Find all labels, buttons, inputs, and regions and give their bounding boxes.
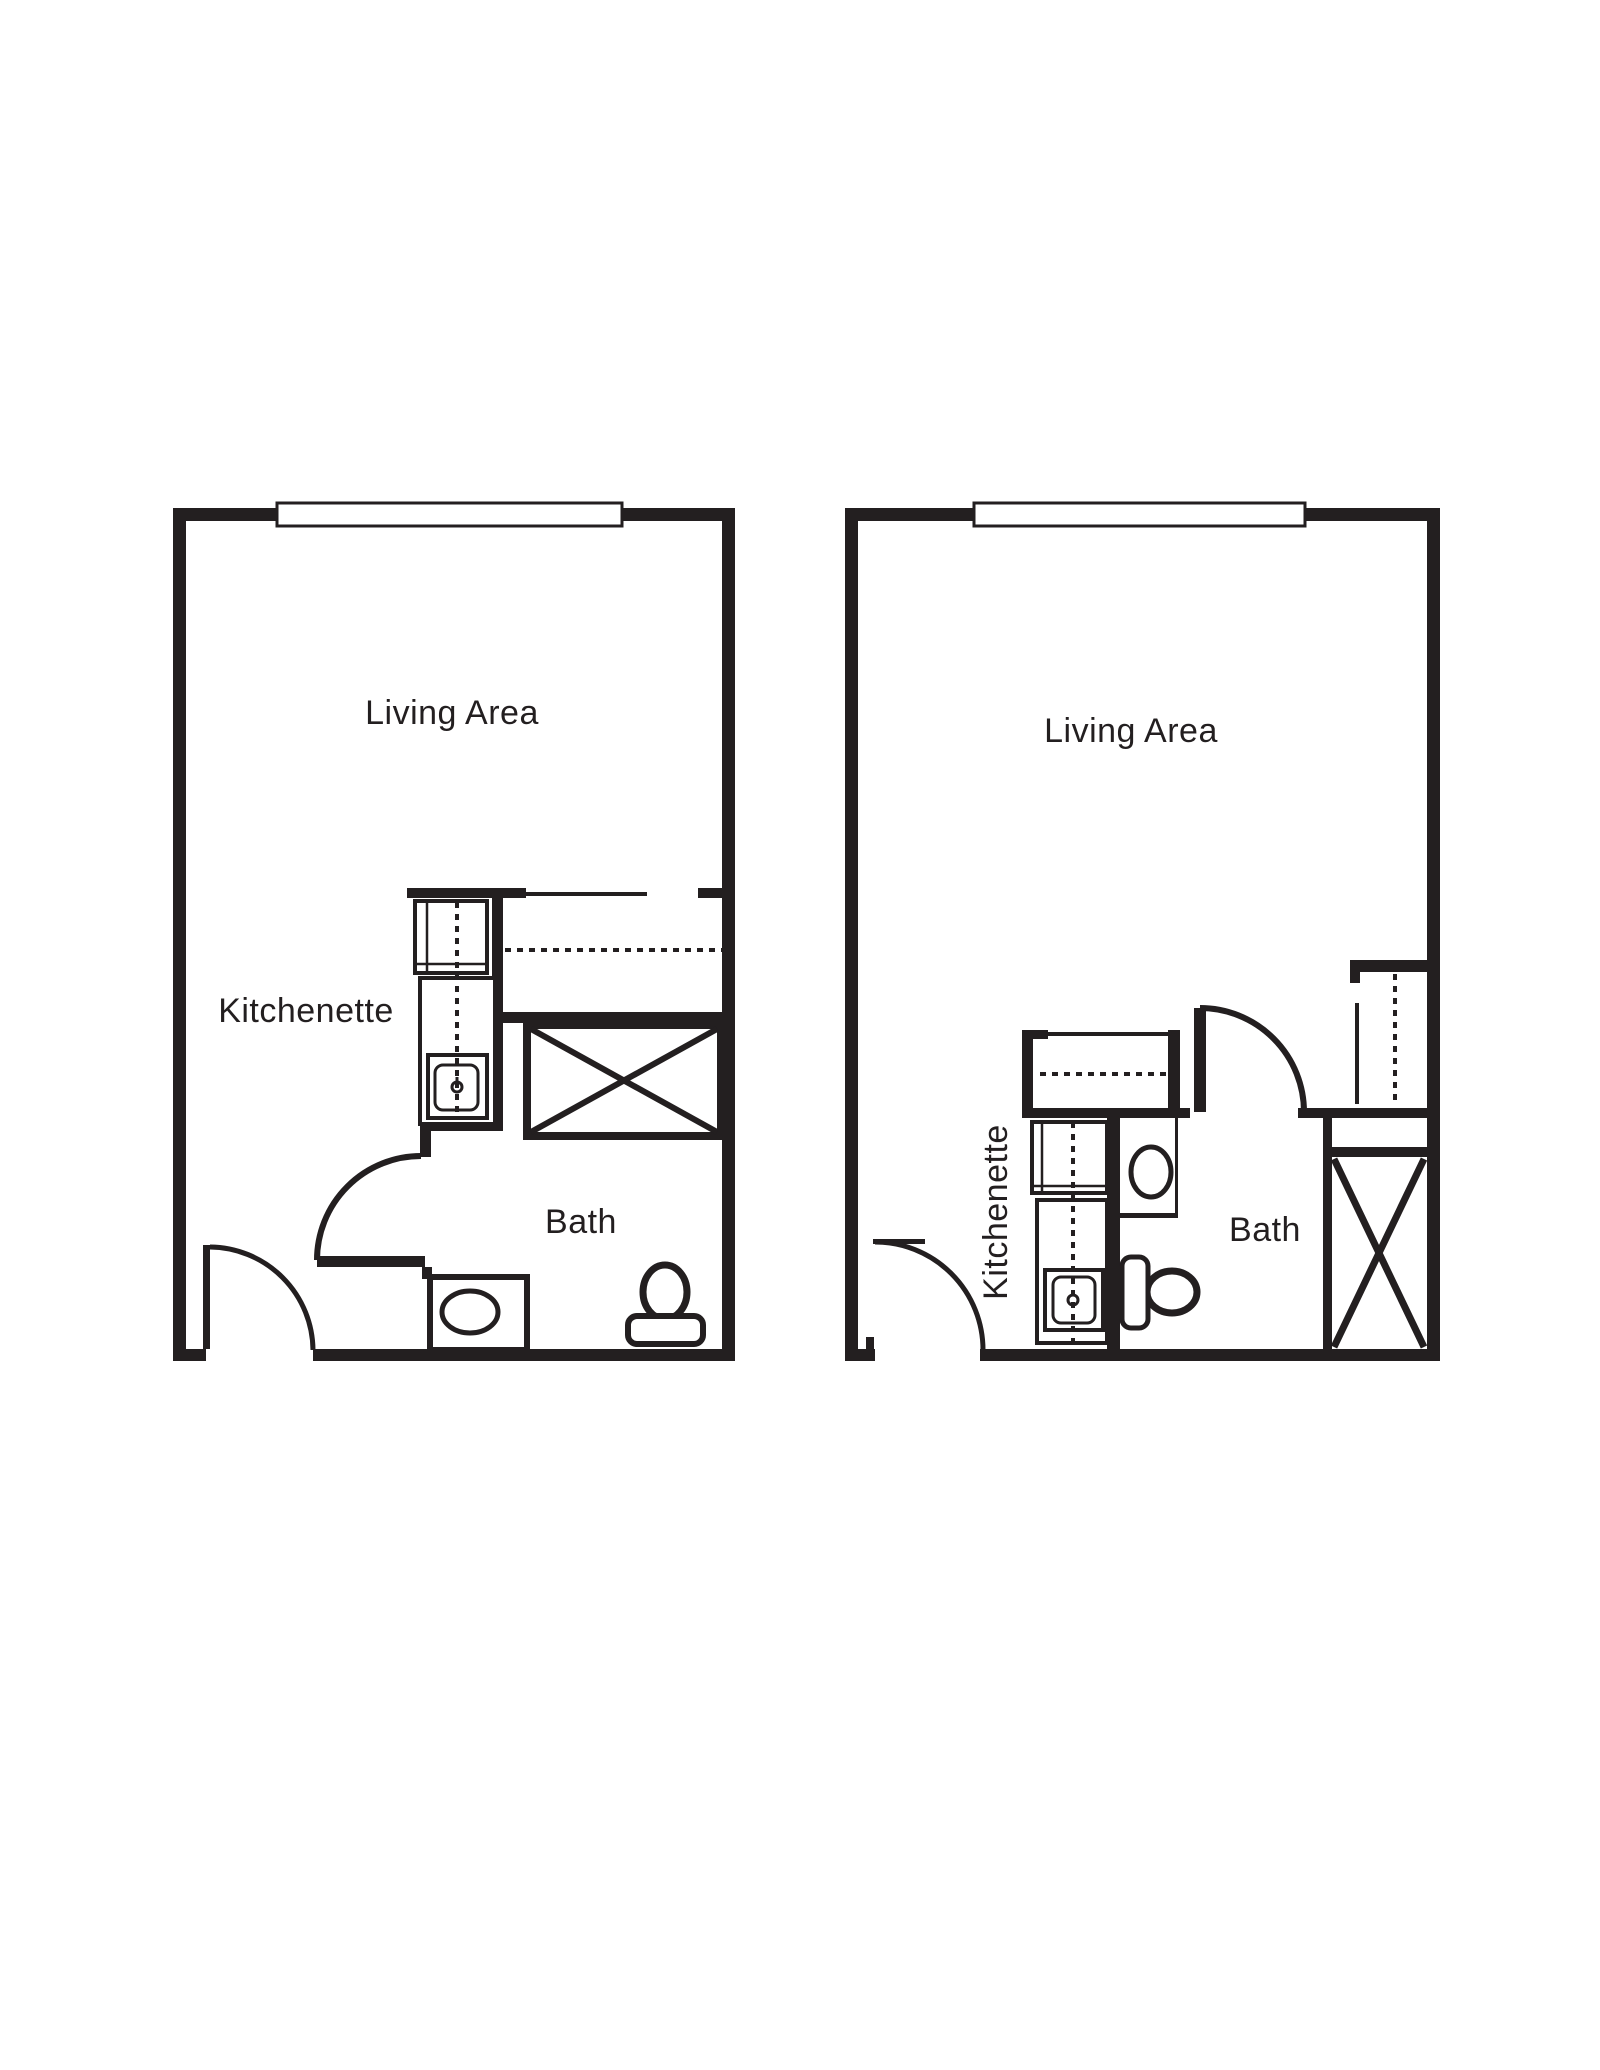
- door-swing-arc: [1200, 1008, 1304, 1112]
- fridge-icon: [415, 901, 487, 973]
- kitchenette-label: Kitchenette: [977, 1124, 1015, 1300]
- left-floor-plan: Living Area Kitchenette Bath: [173, 503, 735, 1361]
- door-leaf: [317, 1256, 425, 1267]
- right-floor-plan: Living Area Kitchenette Bath: [845, 503, 1440, 1361]
- fridge-icon: [1032, 1122, 1107, 1193]
- window-icon: [277, 503, 622, 526]
- counter-edge-line: [526, 892, 647, 896]
- vanity-sink-icon: [430, 1277, 527, 1350]
- vanity-sink-icon: [1120, 1118, 1178, 1218]
- toilet-icon: [1122, 1257, 1197, 1328]
- entry-door: [203, 1245, 313, 1350]
- door-leaf: [203, 1245, 210, 1349]
- right-plan-left-wall: [845, 508, 858, 1361]
- window-icon: [974, 503, 1305, 526]
- floor-plan-document: Living Area Kitchenette Bath: [0, 0, 1600, 2070]
- left-plan-left-wall: [173, 508, 186, 1361]
- bath-door: [1194, 1008, 1304, 1112]
- living-area-label: Living Area: [365, 694, 539, 732]
- left-plan-right-wall: [722, 508, 735, 1361]
- floor-plans-drawing: Living Area Kitchenette Bath: [0, 0, 1600, 2070]
- door-swing-arc: [875, 1242, 983, 1350]
- wall-stub: [698, 888, 724, 898]
- bath-north-wall: [1298, 1108, 1440, 1118]
- bath-door: [317, 1125, 432, 1279]
- x-box-storage-icon: [1323, 1118, 1427, 1349]
- door-swing-arc: [210, 1247, 313, 1350]
- living-area-label: Living Area: [1044, 712, 1218, 750]
- kitchenette-top-wall: [407, 888, 526, 898]
- right-plan-bottom-wall-segment: [980, 1349, 1440, 1361]
- door-leaf: [1194, 1008, 1206, 1112]
- bath-label: Bath: [1229, 1211, 1301, 1249]
- left-plan-bottom-wall-segment: [173, 1349, 206, 1361]
- door-jamb: [420, 1125, 431, 1157]
- closet-door-line: [1355, 1003, 1359, 1104]
- kitchenette-label: Kitchenette: [218, 992, 394, 1030]
- bath-label: Bath: [545, 1203, 617, 1241]
- closet: [1350, 960, 1440, 1104]
- right-plan-right-wall: [1427, 508, 1440, 1361]
- kitchenette-upper-cabinet: [1022, 1030, 1190, 1118]
- door-swing-arc: [317, 1156, 421, 1260]
- toilet-icon: [628, 1265, 703, 1344]
- entry-door: [873, 1239, 983, 1350]
- right-plan-bottom-wall-segment: [845, 1349, 875, 1361]
- door-jamb: [866, 1337, 874, 1350]
- x-box-storage-icon: [527, 1025, 721, 1136]
